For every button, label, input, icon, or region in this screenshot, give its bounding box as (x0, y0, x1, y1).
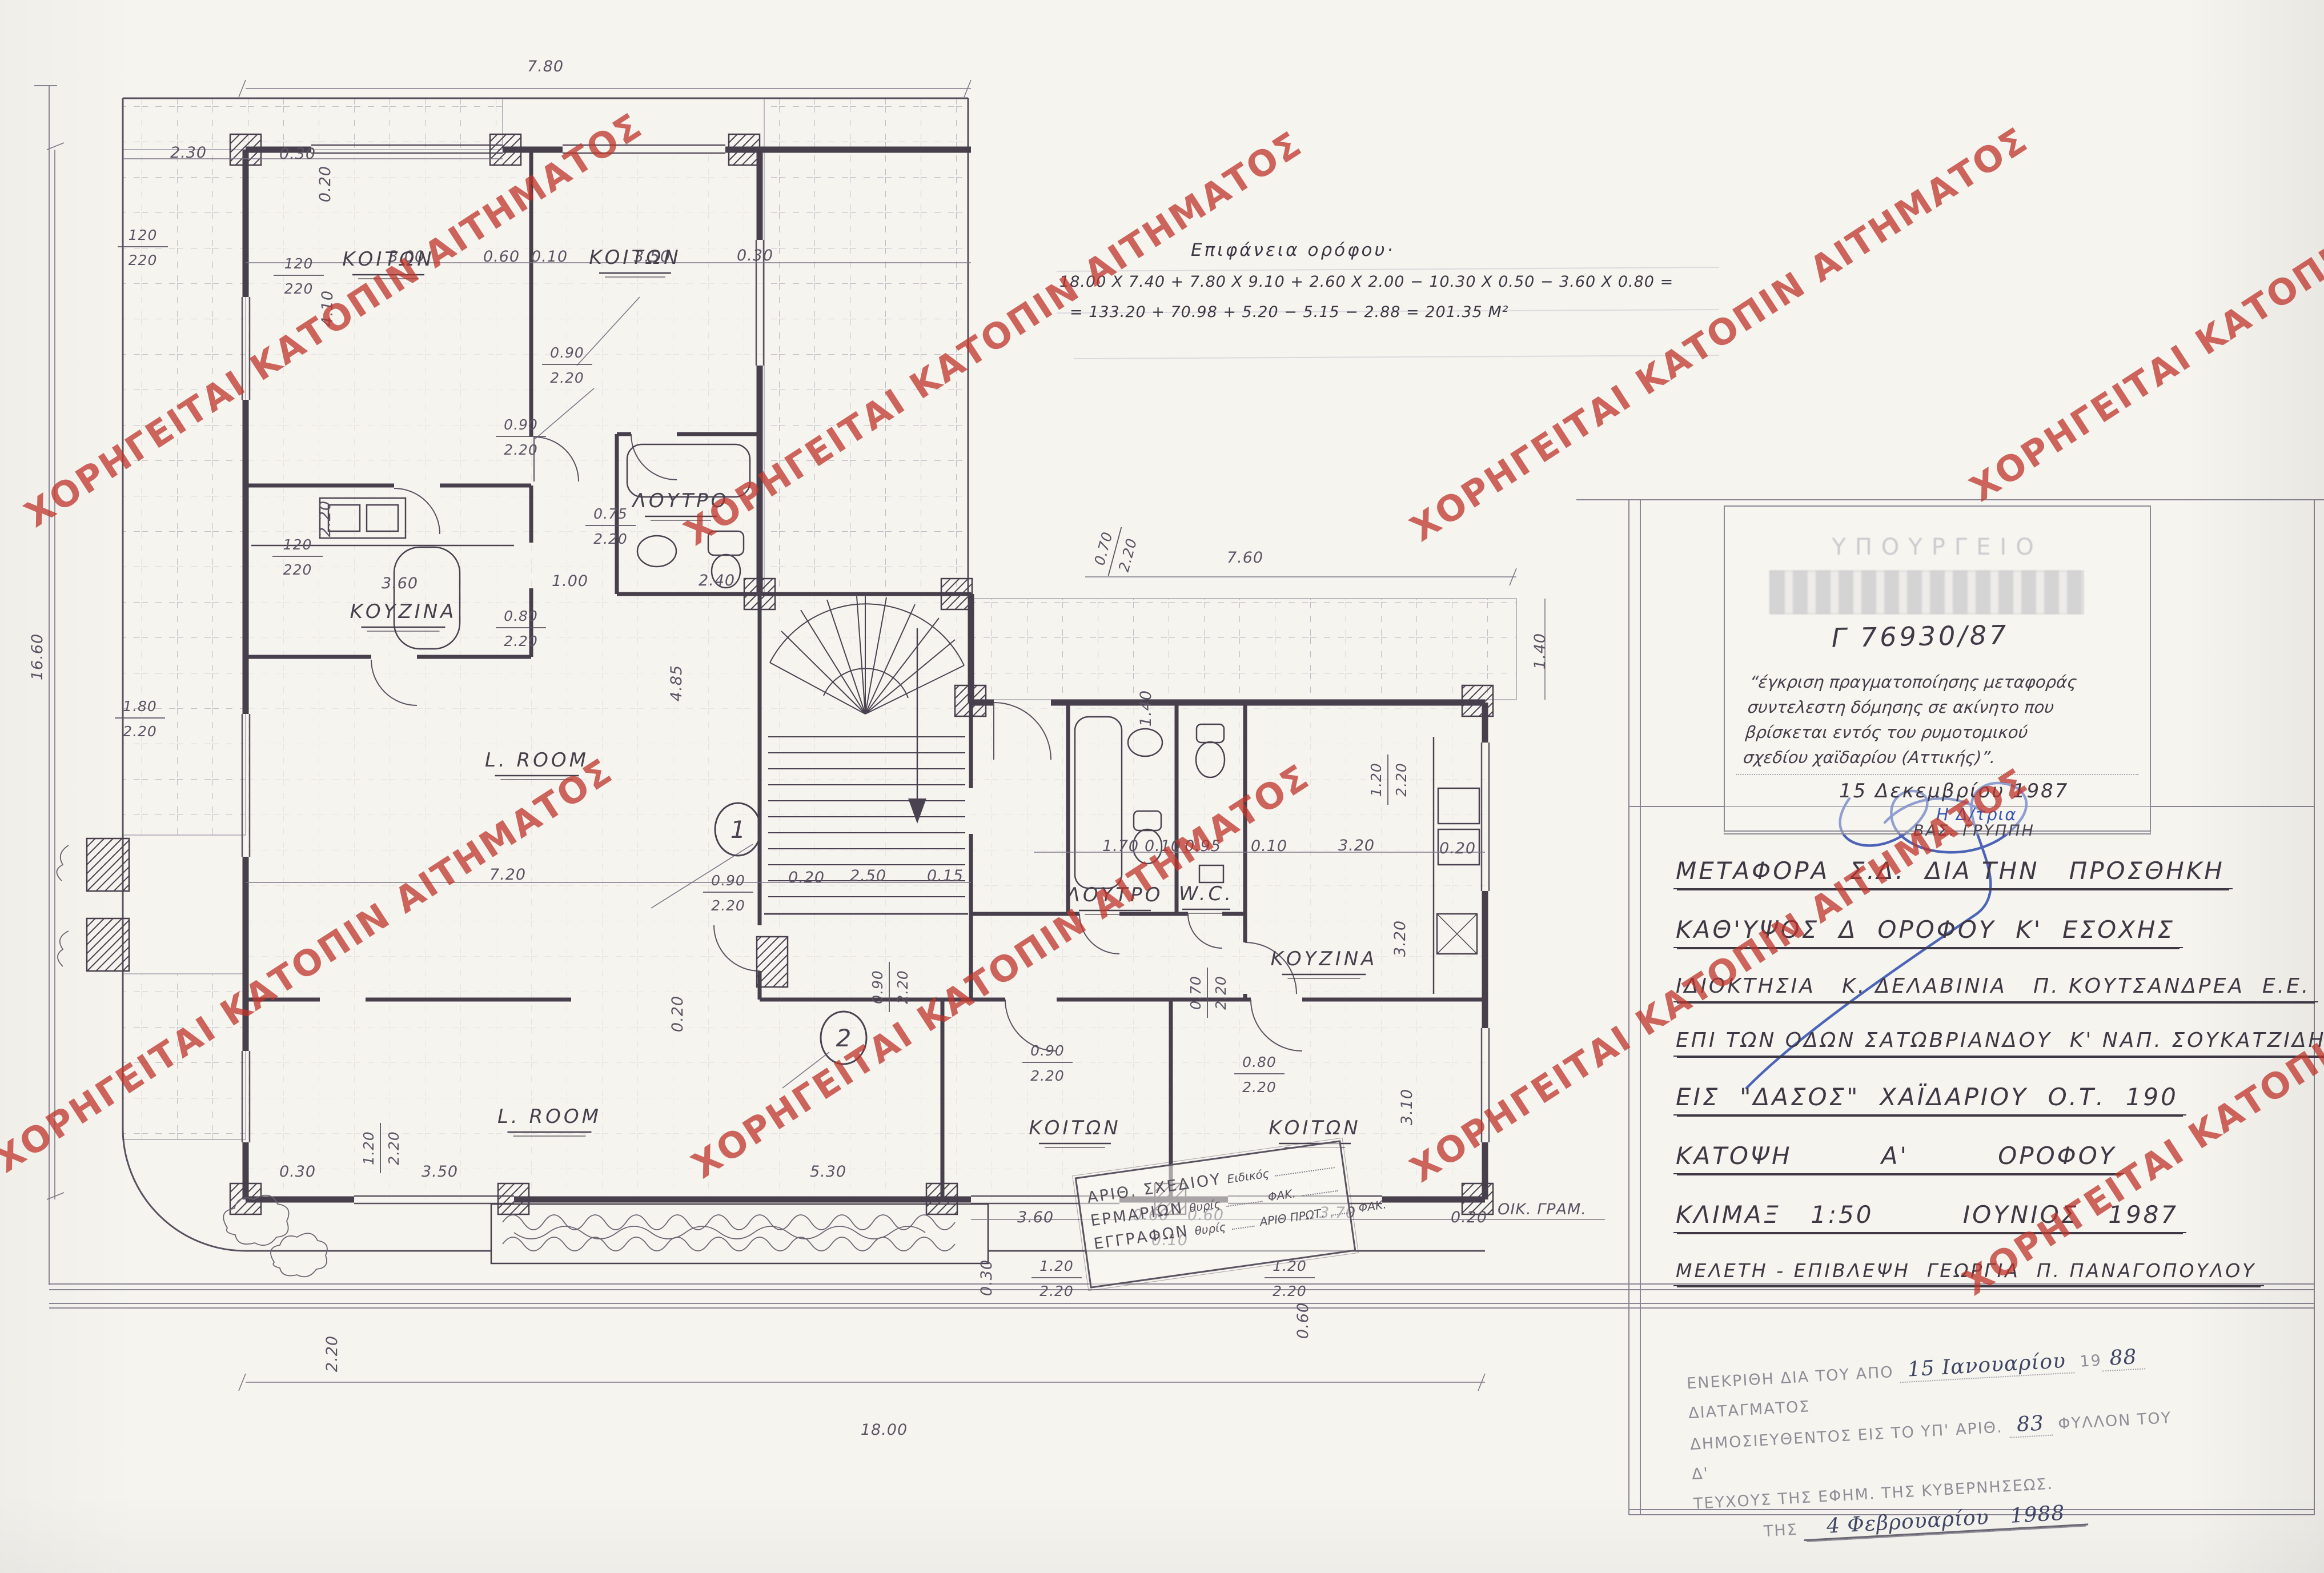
dimension-label: 4.85 (668, 665, 685, 701)
ministry-approval-box: ΥΠΟΥΡΓΕΙΟ Γ 76930/87 “έγκριση πραγματοπο… (1724, 505, 2151, 834)
room-label: ΛΟΥΤΡΟ (1065, 884, 1163, 914)
dimension-label: 7.80 (527, 58, 564, 75)
svg-text:0.80: 0.80 (1242, 1054, 1277, 1070)
area-calc-line1: 18.00 X 7.40 + 7.80 X 9.10 + 2.60 X 2.00… (1059, 273, 1716, 291)
svg-text:2.20: 2.20 (1213, 976, 1229, 1010)
dimension-label: 3.10 (1398, 1089, 1416, 1125)
dimension-label: 2.50 (850, 867, 886, 885)
dimension-label: 1.40 (1137, 690, 1155, 727)
dimension-label: 0.30 (737, 247, 773, 264)
room-label: ΛΟΥΤΡΟ (631, 489, 729, 520)
svg-text:2.20: 2.20 (1273, 1283, 1307, 1299)
svg-text:1.20: 1.20 (360, 1131, 377, 1165)
dimension-fraction: 0.702.20 (1089, 522, 1142, 581)
dimension-label: 0.20 (669, 996, 687, 1032)
dimension-label: 0.10 (531, 248, 568, 266)
svg-text:W.C.: W.C. (1179, 882, 1234, 905)
room-label: W.C. (1179, 882, 1234, 913)
svg-text:ΚΟΥΖΙΝΑ: ΚΟΥΖΙΝΑ (350, 600, 457, 623)
svg-text:0.90: 0.90 (711, 872, 745, 889)
svg-text:2.20: 2.20 (894, 970, 911, 1004)
svg-text:1.20: 1.20 (1039, 1258, 1074, 1274)
svg-text:0.70: 0.70 (1187, 976, 1204, 1010)
dimension-label: 0.20 (316, 166, 334, 202)
title-block-row: ΕΠΙ ΤΩΝ ΟΔΩΝ ΣΑΤΩΒΡΙΑΝΔΟΥ Κ' ΝΑΠ. ΣΟΥΚΑΤ… (1673, 1029, 2324, 1057)
ghost-ministry-header: ΥΠΟΥΡΓΕΙΟ (1725, 534, 2150, 560)
signer-title: Η Δ/τρια (1936, 805, 2017, 824)
dimension-label: 0.30 (978, 1259, 996, 1296)
protocol-number: Γ 76930/87 (1725, 617, 2116, 655)
svg-text:ΚΟΙΤΩΝ: ΚΟΙΤΩΝ (1269, 1117, 1360, 1139)
svg-text:120: 120 (283, 536, 312, 553)
dimension-label: 0.10 (1251, 837, 1287, 855)
decree-stamp: ΕΝΕΚΡΙΘΗ ΔΙΑ ΤΟΥ ΑΠΟ 15 Ιανουαρίου 1988 … (1686, 1340, 2187, 1551)
svg-text:2.20: 2.20 (504, 633, 538, 649)
dimension-label: 7.60 (1227, 549, 1263, 567)
svg-text:0.90: 0.90 (550, 344, 584, 361)
svg-text:2.20: 2.20 (711, 897, 745, 914)
dimension-label: 2.30 (170, 144, 207, 162)
svg-text:0.90: 0.90 (504, 416, 538, 433)
dimension-label: 5.30 (810, 1163, 846, 1181)
title-block-row: ΚΑΘ'ΥΨΟΣ Δ ΟΡΟΦΟΥ Κ' ΕΣΟΧΗΣ (1673, 916, 2183, 948)
svg-text:220: 220 (284, 280, 314, 297)
dimension-label: 2.20 (323, 1335, 341, 1372)
svg-text:ΚΟΙΤΩΝ: ΚΟΙΤΩΝ (1029, 1117, 1121, 1139)
dimension-label: 0.30 (279, 145, 316, 163)
dimension-label: 2.20 (316, 500, 334, 537)
signer-name: ΒΑΣ. ΓΡΥΠΠΗ (1913, 822, 2035, 840)
svg-text:220: 220 (129, 252, 158, 268)
dimension-label: 0.30 (279, 1163, 316, 1181)
dimension-fraction: 1.202.20 (1031, 1258, 1082, 1299)
room-label: L. ROOM (497, 1105, 601, 1136)
room-label: ΚΟΙΤΩΝ (1029, 1117, 1121, 1147)
svg-text:0.90: 0.90 (1030, 1042, 1065, 1059)
dimension-label: 7.20 (489, 866, 526, 884)
room-label: ΚΟΥΖΙΝΑ (350, 600, 457, 631)
dimension-label: 1.70 (1102, 837, 1139, 855)
svg-text:2.20: 2.20 (1039, 1283, 1074, 1299)
dimension-label: 0.60 (1294, 1302, 1312, 1339)
title-block-row: ΚΑΤΟΨΗ Α' ΟΡΟΦΟΥ (1673, 1142, 2124, 1174)
gazette-number-hand: 83 (2008, 1411, 2053, 1438)
svg-text:0.75: 0.75 (593, 505, 628, 522)
dimension-label: 0.15 (927, 867, 964, 885)
area-calc-heading: Επιφάνεια ορόφου· (1191, 240, 1716, 260)
dimension-label: 0.60 (483, 248, 520, 266)
dimension-label: 16.60 (29, 633, 46, 680)
dimension-label: 0.20 (788, 869, 825, 886)
blueprint-sheet: 7.802.300.300.203.000.600.103.500.304.10… (0, 0, 2324, 1573)
dimension-fraction: 1.202.20 (1265, 1258, 1315, 1299)
svg-text:ΚΟΥΖΙΝΑ: ΚΟΥΖΙΝΑ (1271, 948, 1378, 970)
svg-text:2.20: 2.20 (1030, 1068, 1065, 1084)
approval-quote: “έγκριση πραγματοποίησης μεταφοράς συντε… (1742, 669, 2078, 770)
svg-text:2.20: 2.20 (123, 723, 157, 740)
dimension-label: 3.60 (382, 575, 418, 592)
svg-text:2.20: 2.20 (1393, 763, 1410, 797)
svg-text:ΛΟΥΤΡΟ: ΛΟΥΤΡΟ (631, 489, 729, 512)
svg-text:L. ROOM: L. ROOM (497, 1105, 601, 1128)
dimension-label: 4.10 (319, 290, 336, 327)
svg-text:0.80: 0.80 (504, 608, 538, 624)
dotted-rule (1736, 774, 2138, 775)
decree-date-hand: 15 Ιανουαρίου (1899, 1349, 2074, 1383)
dimension-label: 1.40 (1531, 633, 1549, 669)
dimension-label: 18.00 (861, 1421, 908, 1439)
svg-text:2: 2 (836, 1024, 852, 1052)
dimension-label: 3.50 (422, 1163, 458, 1181)
dimension-label: 0.20 (1439, 840, 1476, 857)
svg-text:1.80: 1.80 (123, 698, 157, 715)
room-label: L. ROOM (485, 749, 589, 780)
room-label: ΚΟΥΖΙΝΑ (1271, 948, 1378, 978)
svg-text:2.20: 2.20 (386, 1131, 402, 1165)
title-block: ΜΕΤΑΦΟΡΑ Σ.Δ. ΔΙΑ ΤΗΝ ΠΡΟΣΘΗΚΗΚΑΘ'ΥΨΟΣ Δ… (1673, 857, 2302, 1313)
dimension-label: 0.95 (1185, 837, 1221, 855)
svg-text:120: 120 (129, 227, 158, 243)
svg-text:2.20: 2.20 (1242, 1079, 1277, 1096)
area-calc-line2: = 133.20 + 70.98 + 5.20 − 5.15 − 2.88 = … (1070, 303, 1716, 321)
svg-text:0.90: 0.90 (869, 970, 886, 1004)
dimension-label: ΟΙΚ. ΓΡΑΜ. (1498, 1201, 1587, 1218)
svg-text:1: 1 (730, 816, 746, 844)
room-label: ΚΟΙΤΩΝ (589, 246, 681, 277)
svg-text:ΚΟΙΤΩΝ: ΚΟΙΤΩΝ (342, 248, 434, 271)
dimension-label: 3.60 (1017, 1209, 1054, 1226)
title-block-row: ΜΕΤΑΦΟΡΑ Σ.Δ. ΔΙΑ ΤΗΝ ΠΡΟΣΘΗΚΗ (1673, 857, 2233, 889)
svg-text:220: 220 (283, 561, 312, 578)
title-block-row: ΙΔΙΟΚΤΗΣΙΑ Κ. ΔΕΛΑΒΙΝΙΑ Π. ΚΟΥΤΣΑΝΔΡΕΑ Ε… (1673, 974, 2318, 1002)
svg-text:1.20: 1.20 (1368, 763, 1384, 797)
room-label: ΚΟΙΤΩΝ (1269, 1117, 1360, 1147)
room-label: ΚΟΙΤΩΝ (342, 248, 434, 279)
ghost-stamp-bar (1769, 571, 2084, 614)
svg-text:ΛΟΥΤΡΟ: ΛΟΥΤΡΟ (1065, 884, 1163, 906)
dimension-label: 0.10 (1145, 837, 1181, 855)
svg-text:2.20: 2.20 (550, 370, 584, 386)
approval-date: 15 Δεκεμβρίου 1987 (1839, 780, 2069, 802)
title-block-row: ΜΕΛΕΤΗ - ΕΠΙΒΛΕΨΗ ΓΕΩΡΓΙΑ Π. ΠΑΝΑΓΟΠΟΥΛΟ… (1673, 1259, 2264, 1286)
title-block-row: ΕΙΣ "ΔΑΣΟΣ" ΧΑΪΔΑΡΙΟΥ Ο.Τ. 190 (1673, 1083, 2186, 1115)
dimension-label: 3.20 (1338, 837, 1375, 854)
svg-text:120: 120 (284, 255, 314, 272)
dimension-label: 3.20 (1391, 920, 1409, 957)
title-block-row: ΚΛΙΜΑΞ 1:50 ΙΟΥΝΙΟΣ 1987 (1673, 1201, 2186, 1233)
svg-text:2.20: 2.20 (504, 442, 538, 458)
svg-text:ΚΟΙΤΩΝ: ΚΟΙΤΩΝ (589, 246, 681, 269)
dimension-label: 0.20 (1451, 1209, 1487, 1226)
svg-text:L. ROOM: L. ROOM (485, 749, 589, 772)
dimension-label: 1.00 (552, 572, 588, 590)
area-calculation: Επιφάνεια ορόφου· 18.00 X 7.40 + 7.80 X … (1059, 240, 1716, 321)
dimension-label: 2.40 (699, 572, 735, 589)
svg-text:2.20: 2.20 (1115, 536, 1140, 573)
svg-text:2.20: 2.20 (593, 531, 628, 547)
